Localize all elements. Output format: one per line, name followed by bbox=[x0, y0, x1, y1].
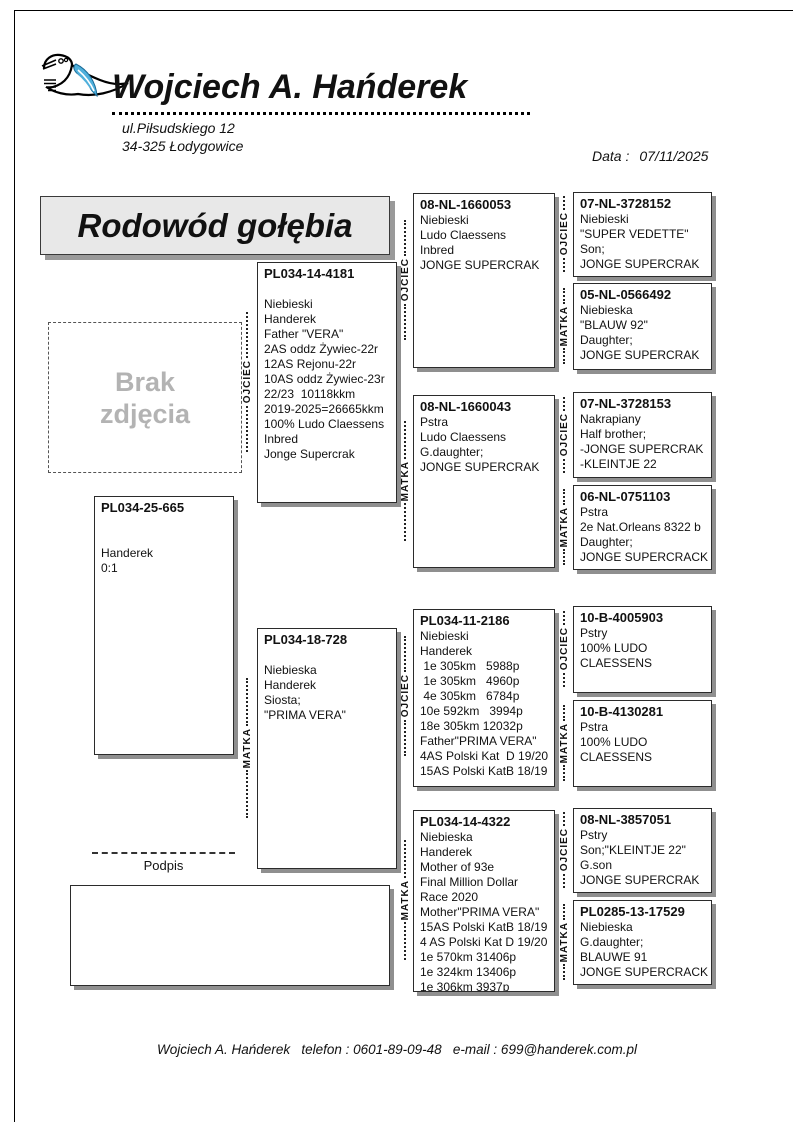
dotted-line bbox=[404, 840, 406, 878]
pedigree-box-ggparent-mff: 10-B-4005903 Pstry100% LUDOCLAESSENS bbox=[573, 606, 712, 693]
pedigree-line: "BLAUW 92" bbox=[580, 318, 709, 333]
pedigree-line: Niebieska bbox=[264, 663, 394, 678]
ring-number: PL034-25-665 bbox=[101, 500, 231, 516]
dotted-line bbox=[563, 258, 565, 272]
pedigree-line: JONGE SUPERCRACK bbox=[580, 550, 709, 565]
pedigree-line: 2019-2025=26665kkm bbox=[264, 402, 394, 417]
pedigree-line: Mother"PRIMA VERA" bbox=[420, 905, 552, 920]
connector-father: OJCIEC bbox=[240, 312, 254, 452]
pedigree-details: Pstra2e Nat.Orleans 8322 bDaughter;JONGE… bbox=[580, 505, 709, 565]
pedigree-line: 100% LUDO bbox=[580, 641, 709, 656]
document-title: Rodowód gołębia bbox=[78, 207, 353, 245]
pedigree-line: Final Million Dollar bbox=[420, 875, 552, 890]
document-title-box: Rodowód gołębia bbox=[40, 196, 390, 255]
pedigree-line: Niebieski bbox=[264, 297, 394, 312]
ring-number: 07-NL-3728153 bbox=[580, 396, 709, 412]
father-label: OJCIEC bbox=[559, 210, 570, 257]
pedigree-details: NiebieskiHanderek 1e 305km 5988p 1e 305k… bbox=[420, 629, 552, 779]
ring-number: 07-NL-3728152 bbox=[580, 196, 709, 212]
connector-mother: MATKA bbox=[240, 678, 254, 818]
pedigree-line: Pstra bbox=[580, 505, 709, 520]
pedigree-line: Niebieska bbox=[580, 303, 709, 318]
dotted-line bbox=[563, 904, 565, 920]
pedigree-line: Niebieski bbox=[420, 629, 552, 644]
pedigree-line: 1e 305km 5988p bbox=[420, 659, 552, 674]
pedigree-line: 15AS Polski KatB 18/19 bbox=[420, 764, 552, 779]
ring-number: 10-B-4005903 bbox=[580, 610, 709, 626]
dotted-line bbox=[563, 549, 565, 565]
photo-placeholder: Brak zdjęcia bbox=[48, 322, 242, 473]
pedigree-box-grandfather-paternal: 08-NL-1660053 NiebieskiLudo ClaessensInb… bbox=[413, 193, 555, 368]
dotted-line bbox=[246, 406, 248, 452]
pedigree-line: 4e 305km 6784p bbox=[420, 689, 552, 704]
signature-line bbox=[92, 852, 235, 854]
photo-placeholder-text-2: zdjęcia bbox=[100, 398, 190, 430]
photo-placeholder-text-1: Brak bbox=[115, 366, 175, 398]
pedigree-line: 22/23 10118kkm bbox=[264, 387, 394, 402]
pedigree-line: Mother of 93e bbox=[420, 860, 552, 875]
pedigree-line: 18e 305km 12032p bbox=[420, 719, 552, 734]
connector-father: OJCIEC bbox=[557, 196, 571, 272]
mother-label: MATKA bbox=[559, 505, 570, 549]
ring-number: PL0285-13-17529 bbox=[580, 904, 709, 920]
pedigree-details: NiebieskaHanderekSiosta;"PRIMA VERA" bbox=[264, 648, 394, 723]
pedigree-line: JONGE SUPERCRAK bbox=[580, 873, 709, 888]
dotted-line bbox=[563, 964, 565, 980]
pedigree-line: JONGE SUPERCRAK bbox=[580, 257, 709, 272]
connector-mother: MATKA bbox=[557, 705, 571, 781]
pedigree-details: Handerek0:1 bbox=[101, 516, 231, 576]
pedigree-box-ggparent-fmf: 07-NL-3728153 NakrapianyHalf brother;-JO… bbox=[573, 392, 712, 478]
pedigree-line bbox=[264, 282, 394, 297]
pedigree-box-ggparent-mfm: 10-B-4130281 Pstra100% LUDOCLAESSENS bbox=[573, 700, 712, 787]
pedigree-document-page: Wojciech A. Hańderek ul.Piłsudskiego 12 … bbox=[0, 0, 794, 1123]
pedigree-box-mother: PL034-18-728 NiebieskaHanderekSiosta;"PR… bbox=[257, 628, 397, 869]
dotted-line bbox=[404, 304, 406, 340]
connector-father: OJCIEC bbox=[398, 636, 412, 756]
date-value: 07/11/2025 bbox=[639, 148, 708, 164]
date-line: Data :07/11/2025 bbox=[592, 148, 708, 164]
pedigree-line: BLAUWE 91 bbox=[580, 950, 709, 965]
connector-mother: MATKA bbox=[557, 489, 571, 565]
mother-label: MATKA bbox=[400, 878, 411, 922]
pedigree-box-grandmother-paternal: 08-NL-1660043 PstraLudo ClaessensG.daugh… bbox=[413, 395, 555, 568]
pedigree-line: 15AS Polski KatB 18/19 bbox=[420, 920, 552, 935]
dotted-line bbox=[563, 288, 565, 304]
owner-name: Wojciech A. Hańderek bbox=[112, 68, 542, 107]
pedigree-line: Daughter; bbox=[580, 333, 709, 348]
dotted-line bbox=[404, 636, 406, 672]
pedigree-details: Pstry100% LUDOCLAESSENS bbox=[580, 626, 709, 671]
dotted-line bbox=[404, 220, 406, 256]
pedigree-line: Half brother; bbox=[580, 427, 709, 442]
pedigree-line: -JONGE SUPERCRAK bbox=[580, 442, 709, 457]
pedigree-line: Pstra bbox=[580, 720, 709, 735]
dotted-line bbox=[563, 673, 565, 687]
pedigree-line: -KLEINTJE 22 bbox=[580, 457, 709, 472]
pedigree-box-grandfather-maternal: PL034-11-2186 NiebieskiHanderek 1e 305km… bbox=[413, 609, 555, 787]
pedigree-line: JONGE SUPERCRAK bbox=[580, 348, 709, 363]
connector-father: OJCIEC bbox=[557, 812, 571, 888]
ring-number: 06-NL-0751103 bbox=[580, 489, 709, 505]
ring-number: PL034-14-4181 bbox=[264, 266, 394, 282]
pedigree-details: NiebieskiLudo ClaessensInbredJONGE SUPER… bbox=[420, 213, 552, 273]
pedigree-line: 10AS oddz Żywiec-23r bbox=[264, 372, 394, 387]
pedigree-line: Ludo Claessens bbox=[420, 430, 552, 445]
mother-label: MATKA bbox=[400, 459, 411, 503]
pedigree-line: 4AS Polski Kat D 19/20 bbox=[420, 749, 552, 764]
connector-mother: MATKA bbox=[398, 840, 412, 960]
dotted-line bbox=[246, 678, 248, 726]
pedigree-line: Niebieska bbox=[580, 920, 709, 935]
dotted-line bbox=[563, 348, 565, 364]
footer-contact: Wojciech A. Hańderek telefon : 0601-89-0… bbox=[0, 1042, 794, 1057]
pedigree-line: 1e 305km 4960p bbox=[420, 674, 552, 689]
pedigree-line: 1e 306km 3937p bbox=[420, 980, 552, 992]
pedigree-line: Siosta; bbox=[264, 693, 394, 708]
pedigree-line: CLAESSENS bbox=[580, 750, 709, 765]
pedigree-line: Pstra bbox=[420, 415, 552, 430]
dotted-line bbox=[404, 503, 406, 541]
dotted-line bbox=[563, 874, 565, 888]
dotted-line bbox=[404, 922, 406, 960]
pedigree-details: PstrySon;"KLEINTJE 22"G.sonJONGE SUPERCR… bbox=[580, 828, 709, 888]
pedigree-line: 1e 570km 31406p bbox=[420, 950, 552, 965]
pedigree-line bbox=[101, 531, 231, 546]
father-label: OJCIEC bbox=[559, 826, 570, 873]
pedigree-line: G.daughter; bbox=[420, 445, 552, 460]
ring-number: 08-NL-1660053 bbox=[420, 197, 552, 213]
mother-label: MATKA bbox=[559, 920, 570, 964]
pedigree-line: 1e 324km 13406p bbox=[420, 965, 552, 980]
pedigree-line bbox=[101, 516, 231, 531]
pedigree-line: JONGE SUPERCRAK bbox=[420, 460, 552, 475]
dotted-line bbox=[563, 459, 565, 473]
pedigree-line: Pstry bbox=[580, 828, 709, 843]
pedigree-line: "PRIMA VERA" bbox=[264, 708, 394, 723]
pedigree-details: Pstra100% LUDOCLAESSENS bbox=[580, 720, 709, 765]
pedigree-line: Father"PRIMA VERA" bbox=[420, 734, 552, 749]
pedigree-box-ggparent-fff: 07-NL-3728152 Niebieski"SUPER VEDETTE"So… bbox=[573, 192, 712, 277]
pedigree-line: Daughter; bbox=[580, 535, 709, 550]
pedigree-line: 4 AS Polski Kat D 19/20 bbox=[420, 935, 552, 950]
pedigree-line: Father "VERA" bbox=[264, 327, 394, 342]
notes-box bbox=[70, 885, 390, 986]
pedigree-line: Handerek bbox=[101, 546, 231, 561]
ring-number: PL034-11-2186 bbox=[420, 613, 552, 629]
pedigree-line: Pstry bbox=[580, 626, 709, 641]
dotted-line bbox=[563, 489, 565, 505]
connector-mother: MATKA bbox=[398, 421, 412, 541]
pedigree-details: PstraLudo ClaessensG.daughter;JONGE SUPE… bbox=[420, 415, 552, 475]
owner-address-city: 34-325 Łodygowice bbox=[122, 138, 243, 154]
page-border-top bbox=[14, 10, 793, 11]
ring-number: PL034-14-4322 bbox=[420, 814, 552, 830]
pedigree-box-ggparent-mmm: PL0285-13-17529 NiebieskaG.daughter;BLAU… bbox=[573, 900, 712, 985]
pedigree-details: NiebieskiHanderekFather "VERA"2AS oddz Ż… bbox=[264, 282, 394, 462]
dotted-line bbox=[563, 765, 565, 781]
dotted-line bbox=[246, 770, 248, 818]
pedigree-box-grandmother-maternal: PL034-14-4322 NiebieskaHanderekMother of… bbox=[413, 810, 555, 992]
pedigree-line: 100% Ludo Claessens bbox=[264, 417, 394, 432]
connector-mother: MATKA bbox=[557, 288, 571, 364]
pedigree-line: Jonge Supercrak bbox=[264, 447, 394, 462]
pedigree-line: 12AS Rejonu-22r bbox=[264, 357, 394, 372]
pedigree-line: Handerek bbox=[420, 644, 552, 659]
pedigree-line: G.daughter; bbox=[580, 935, 709, 950]
pedigree-line: 2AS oddz Żywiec-22r bbox=[264, 342, 394, 357]
pedigree-line: Niebieska bbox=[420, 830, 552, 845]
dotted-line bbox=[404, 720, 406, 756]
pedigree-line: Nakrapiany bbox=[580, 412, 709, 427]
pedigree-line: Inbred bbox=[264, 432, 394, 447]
ring-number: PL034-18-728 bbox=[264, 632, 394, 648]
pedigree-line: "SUPER VEDETTE" bbox=[580, 227, 709, 242]
pedigree-line: G.son bbox=[580, 858, 709, 873]
signature-label: Podpis bbox=[92, 858, 235, 873]
date-label: Data : bbox=[592, 148, 629, 164]
dotted-line bbox=[563, 812, 565, 826]
connector-father: OJCIEC bbox=[398, 220, 412, 340]
pedigree-details: Niebieski"SUPER VEDETTE"Son;JONGE SUPERC… bbox=[580, 212, 709, 272]
connector-father: OJCIEC bbox=[557, 611, 571, 687]
mother-label: MATKA bbox=[559, 721, 570, 765]
pedigree-line: JONGE SUPERCRACK bbox=[580, 965, 709, 980]
pedigree-line: CLAESSENS bbox=[580, 656, 709, 671]
father-label: OJCIEC bbox=[400, 672, 411, 719]
ring-number: 05-NL-0566492 bbox=[580, 287, 709, 303]
pedigree-line: Race 2020 bbox=[420, 890, 552, 905]
ring-number: 08-NL-1660043 bbox=[420, 399, 552, 415]
pedigree-details: NakrapianyHalf brother;-JONGE SUPERCRAK-… bbox=[580, 412, 709, 472]
pedigree-line: 100% LUDO bbox=[580, 735, 709, 750]
name-underline bbox=[112, 112, 530, 115]
page-border-left bbox=[14, 10, 15, 1122]
pedigree-box-ggparent-mmf: 08-NL-3857051 PstrySon;"KLEINTJE 22"G.so… bbox=[573, 808, 712, 893]
pedigree-box-father: PL034-14-4181 NiebieskiHanderekFather "V… bbox=[257, 262, 397, 503]
mother-label: MATKA bbox=[559, 304, 570, 348]
pedigree-line: Handerek bbox=[264, 678, 394, 693]
pedigree-line: Ludo Claessens bbox=[420, 228, 552, 243]
father-label: OJCIEC bbox=[559, 625, 570, 672]
pedigree-line: 2e Nat.Orleans 8322 b bbox=[580, 520, 709, 535]
dotted-line bbox=[563, 705, 565, 721]
pedigree-line: Son; bbox=[580, 242, 709, 257]
dotted-line bbox=[404, 421, 406, 459]
pedigree-details: NiebieskaHanderekMother of 93eFinal Mill… bbox=[420, 830, 552, 992]
pedigree-details: Niebieska"BLAUW 92"Daughter;JONGE SUPERC… bbox=[580, 303, 709, 363]
pedigree-line: JONGE SUPERCRAK bbox=[420, 258, 552, 273]
connector-mother: MATKA bbox=[557, 904, 571, 980]
pedigree-box-ggparent-fmm: 06-NL-0751103 Pstra2e Nat.Orleans 8322 b… bbox=[573, 485, 712, 570]
connector-father: OJCIEC bbox=[557, 397, 571, 473]
dotted-line bbox=[563, 611, 565, 625]
ring-number: 08-NL-3857051 bbox=[580, 812, 709, 828]
dotted-line bbox=[563, 196, 565, 210]
pedigree-box-subject: PL034-25-665 Handerek0:1 bbox=[94, 496, 234, 755]
pedigree-line bbox=[264, 648, 394, 663]
pedigree-line: Niebieski bbox=[420, 213, 552, 228]
pedigree-line: Inbred bbox=[420, 243, 552, 258]
mother-label: MATKA bbox=[242, 726, 253, 770]
father-label: OJCIEC bbox=[400, 256, 411, 303]
pedigree-box-ggparent-ffm: 05-NL-0566492 Niebieska"BLAUW 92"Daughte… bbox=[573, 283, 712, 370]
pedigree-details: NiebieskaG.daughter;BLAUWE 91JONGE SUPER… bbox=[580, 920, 709, 980]
father-label: OJCIEC bbox=[559, 411, 570, 458]
owner-address-street: ul.Piłsudskiego 12 bbox=[122, 120, 235, 136]
pedigree-line: 0:1 bbox=[101, 561, 231, 576]
pedigree-line: 10e 592km 3994p bbox=[420, 704, 552, 719]
pedigree-line: Niebieski bbox=[580, 212, 709, 227]
pedigree-line: Handerek bbox=[420, 845, 552, 860]
pedigree-line: Handerek bbox=[264, 312, 394, 327]
ring-number: 10-B-4130281 bbox=[580, 704, 709, 720]
dotted-line bbox=[246, 312, 248, 358]
dotted-line bbox=[563, 397, 565, 411]
father-label: OJCIEC bbox=[242, 358, 253, 405]
pedigree-line: Son;"KLEINTJE 22" bbox=[580, 843, 709, 858]
